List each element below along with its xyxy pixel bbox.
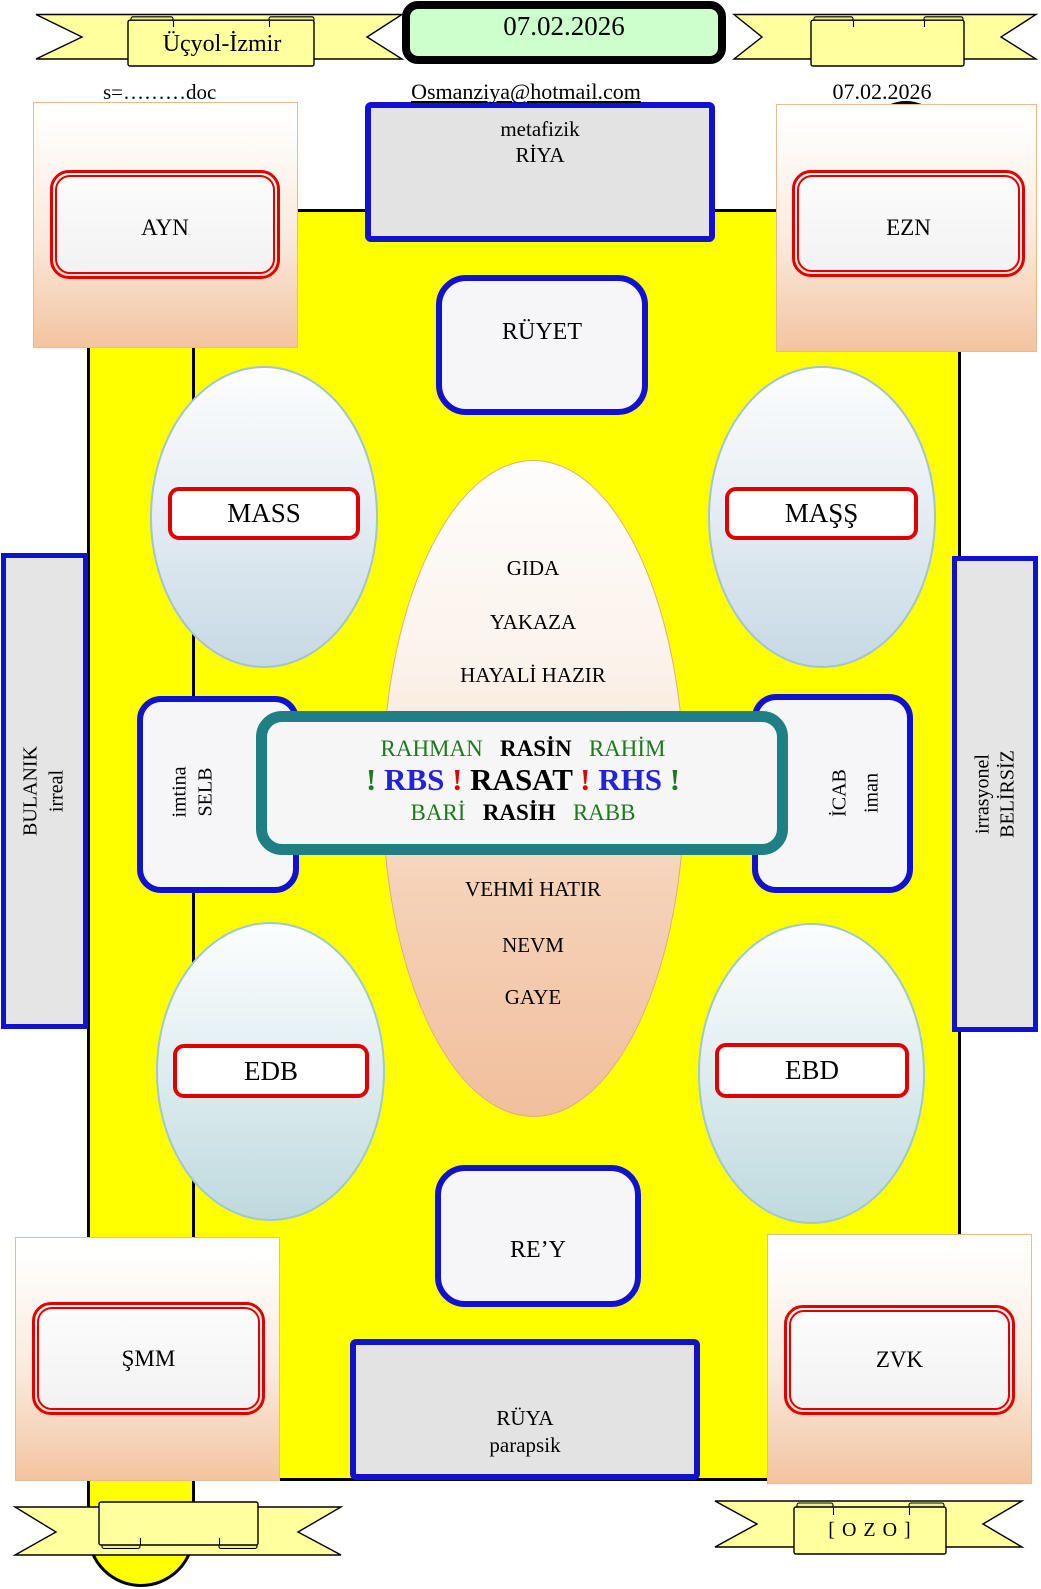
svg-text:Üçyol-İzmir: Üçyol-İzmir [163, 31, 282, 57]
svg-text:[ O Z O ]: [ O Z O ] [828, 1519, 911, 1541]
